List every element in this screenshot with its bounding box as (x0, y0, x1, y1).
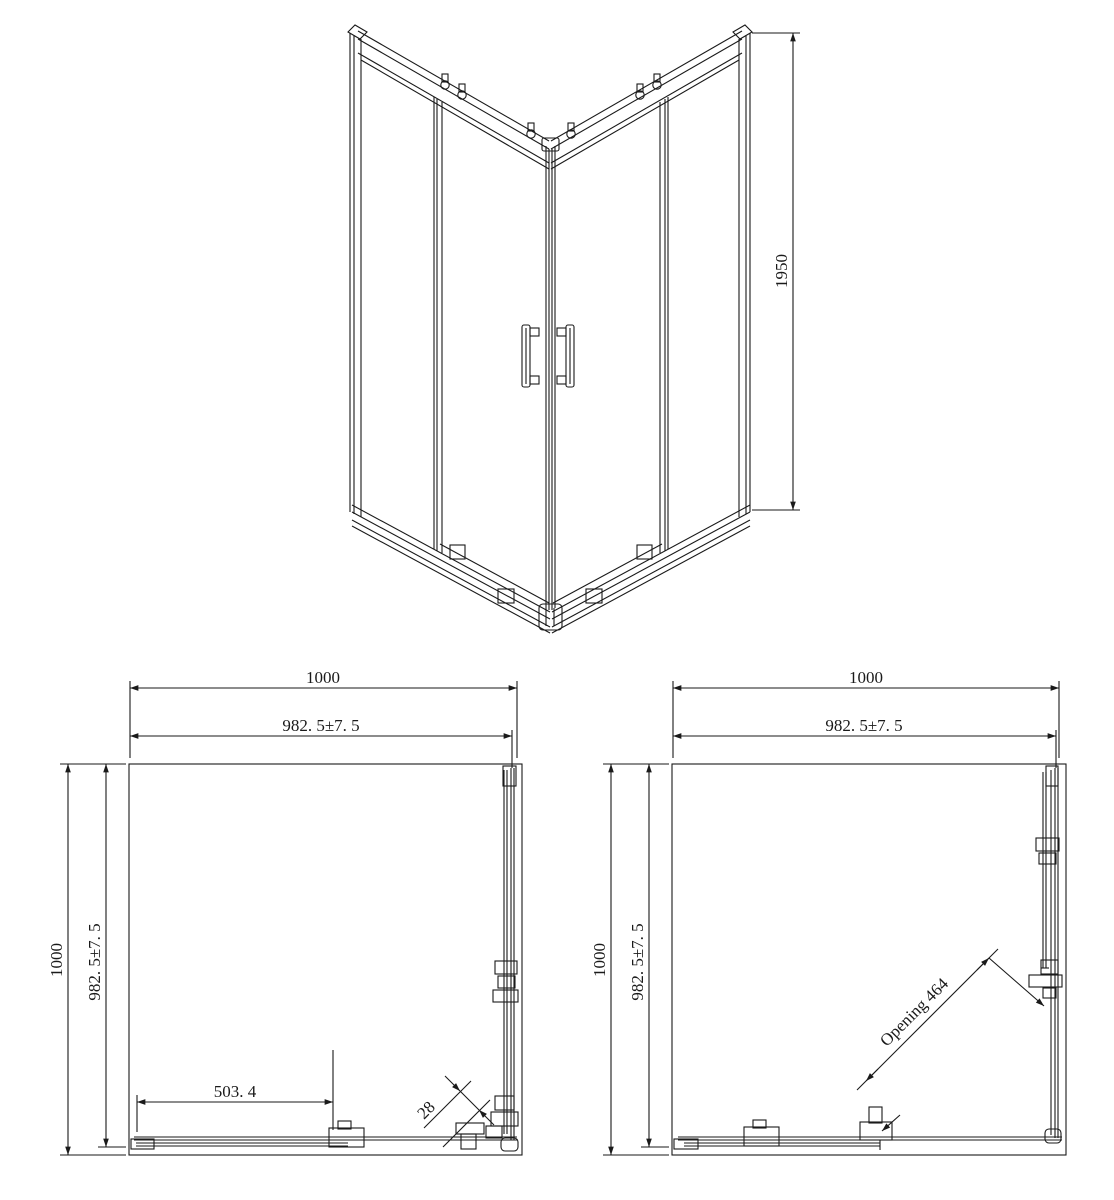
dim-opening: Opening 464 (857, 949, 1044, 1131)
top-rail-right (551, 31, 742, 169)
corner-post-top-cap (542, 138, 559, 151)
closed-right-side-assembly (486, 766, 518, 1151)
closed-bottom-side-assembly (131, 1121, 517, 1149)
left-wall-post (348, 25, 367, 517)
shower-enclosure-technical-drawing: 1950 (0, 0, 1114, 1200)
dim-height-1950: 1950 (752, 33, 800, 510)
bottom-rail-left (352, 505, 550, 633)
corner-post (542, 138, 559, 610)
tray-outline-closed (129, 764, 522, 1155)
dim-open-glass-width: 982. 5±7. 5 (673, 716, 1056, 768)
dim-opening-label: Opening 464 (876, 974, 952, 1050)
dim-open-glass-depth-label: 982. 5±7. 5 (628, 923, 647, 1000)
dim-open-overall-depth-label: 1000 (590, 943, 609, 977)
top-rail-left (358, 31, 549, 169)
dim-closed-overall-depth-label: 1000 (47, 943, 66, 977)
fixed-panel-seam-left (434, 97, 442, 553)
perspective-view: 1950 (348, 25, 800, 633)
right-wall-post (733, 25, 752, 517)
dim-closed-glass-width: 982. 5±7. 5 (130, 716, 512, 768)
dim-closed-overall-width: 1000 (130, 668, 517, 758)
right-door-handle (557, 325, 574, 387)
dim-closed-glass-width-label: 982. 5±7. 5 (282, 716, 359, 735)
dim-panel-width: 503. 4 (137, 1050, 333, 1132)
left-door-handle (522, 325, 539, 387)
dim-open-overall-width-label: 1000 (849, 668, 883, 687)
drawing-sheet: 1950 (0, 0, 1114, 1200)
fixed-panel-seam-right (660, 97, 668, 553)
tray-outline-open (672, 764, 1066, 1155)
dim-profile-width-label: 28 (413, 1097, 438, 1122)
bottom-rail-right (552, 505, 750, 633)
dim-height-label: 1950 (772, 254, 791, 288)
dim-open-overall-width: 1000 (673, 668, 1059, 758)
dim-closed-overall-width-label: 1000 (306, 668, 340, 687)
dim-open-glass-width-label: 982. 5±7. 5 (825, 716, 902, 735)
open-right-side-assembly (1029, 766, 1062, 1143)
wall-profile-top-right-open (1046, 766, 1058, 786)
plan-view-open: 1000 982. 5±7. 5 1000 982. 5±7. 5 (590, 668, 1066, 1155)
dim-closed-glass-depth-label: 982. 5±7. 5 (85, 923, 104, 1000)
open-bottom-side-assembly (674, 1107, 1062, 1150)
plan-view-closed: 1000 982. 5±7. 5 1000 982. 5±7. 5 503. 4 (47, 668, 522, 1155)
dim-open-glass-depth: 982. 5±7. 5 (628, 764, 669, 1147)
corner-profile-open (1045, 1129, 1061, 1143)
dim-profile-width: 28 (413, 1076, 494, 1147)
dim-closed-glass-depth: 982. 5±7. 5 (85, 764, 126, 1147)
dim-panel-width-label: 503. 4 (214, 1082, 257, 1101)
